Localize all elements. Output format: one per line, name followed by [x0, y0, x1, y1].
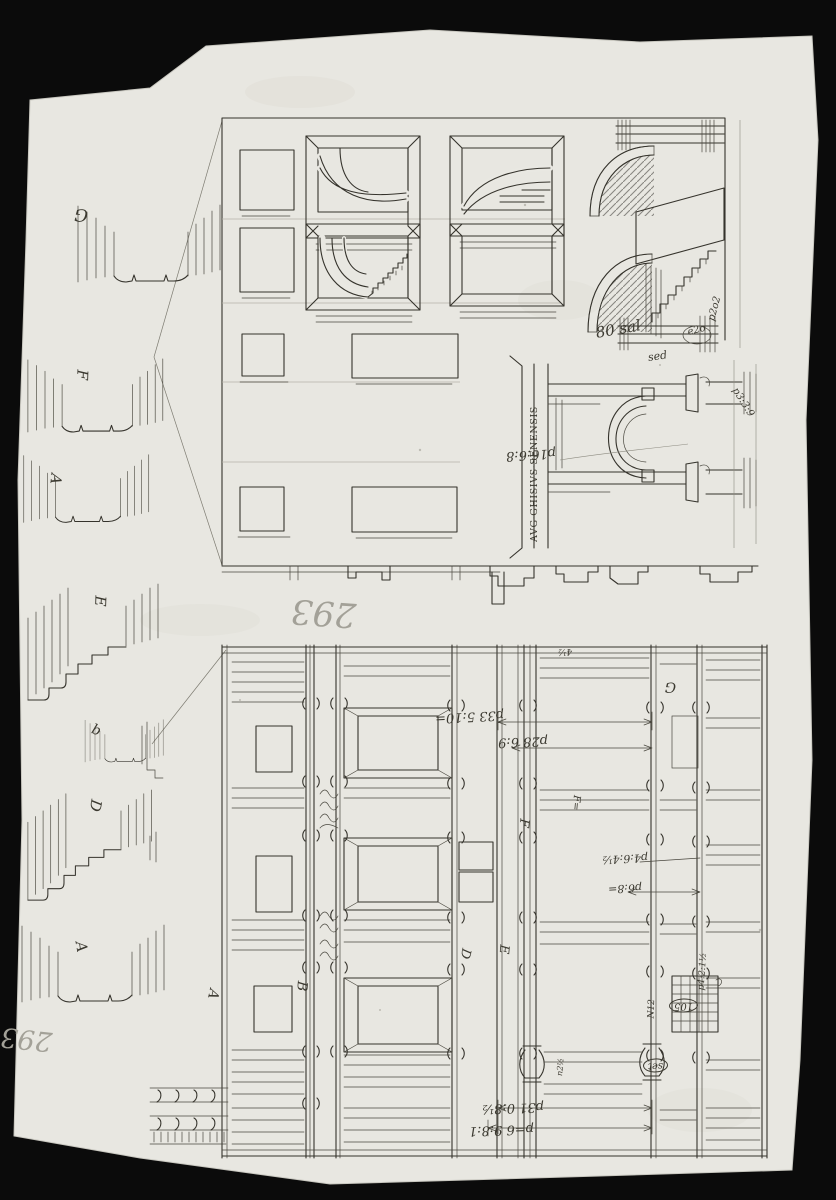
bay-letter-b: B [294, 980, 309, 991]
folio-number: 293 [290, 594, 357, 632]
dim-bottom-lower: p=6 9:8:1 [469, 1122, 535, 1137]
dim-niche-no: N12 [648, 999, 658, 1019]
scanned-architectural-drawing: G F A E b D A 80 sal e2o p2o2 AVG·GHISIV… [0, 0, 836, 1200]
bay-letter-f-eq: F= [570, 795, 581, 811]
drawing-linework [0, 0, 836, 1200]
portal-inscription: AVG·GHISIVS·SENENSIS [530, 406, 540, 542]
profile-label-e: E [92, 595, 107, 606]
dim-bottom-upper: p31 0:8½ [481, 1100, 544, 1115]
dim-right-upper: p4:6:4½ [602, 852, 649, 865]
dim-width-lower: p28 6:9 [498, 734, 548, 749]
profile-label-a1: A [47, 473, 63, 485]
dim-width-upper: p33 5:10= [435, 708, 505, 725]
folio-number-2: 293 [0, 1023, 53, 1055]
lower-top-tick: 4½ [557, 646, 572, 655]
portal-top-note: sed [647, 349, 668, 363]
profile-label-g: G [74, 205, 89, 223]
bay-letter-e: E [497, 944, 511, 955]
dim-rail-note: n2½ [556, 1058, 566, 1077]
portal-width-dim: p16:6:8 [505, 446, 556, 462]
dim-right-mid: p6:8= [608, 882, 642, 895]
profile-label-f: F [74, 369, 89, 380]
profile-label-d: D [87, 798, 104, 812]
bay-letter-f: F [517, 818, 531, 828]
bay-letter-g: G [664, 679, 676, 694]
